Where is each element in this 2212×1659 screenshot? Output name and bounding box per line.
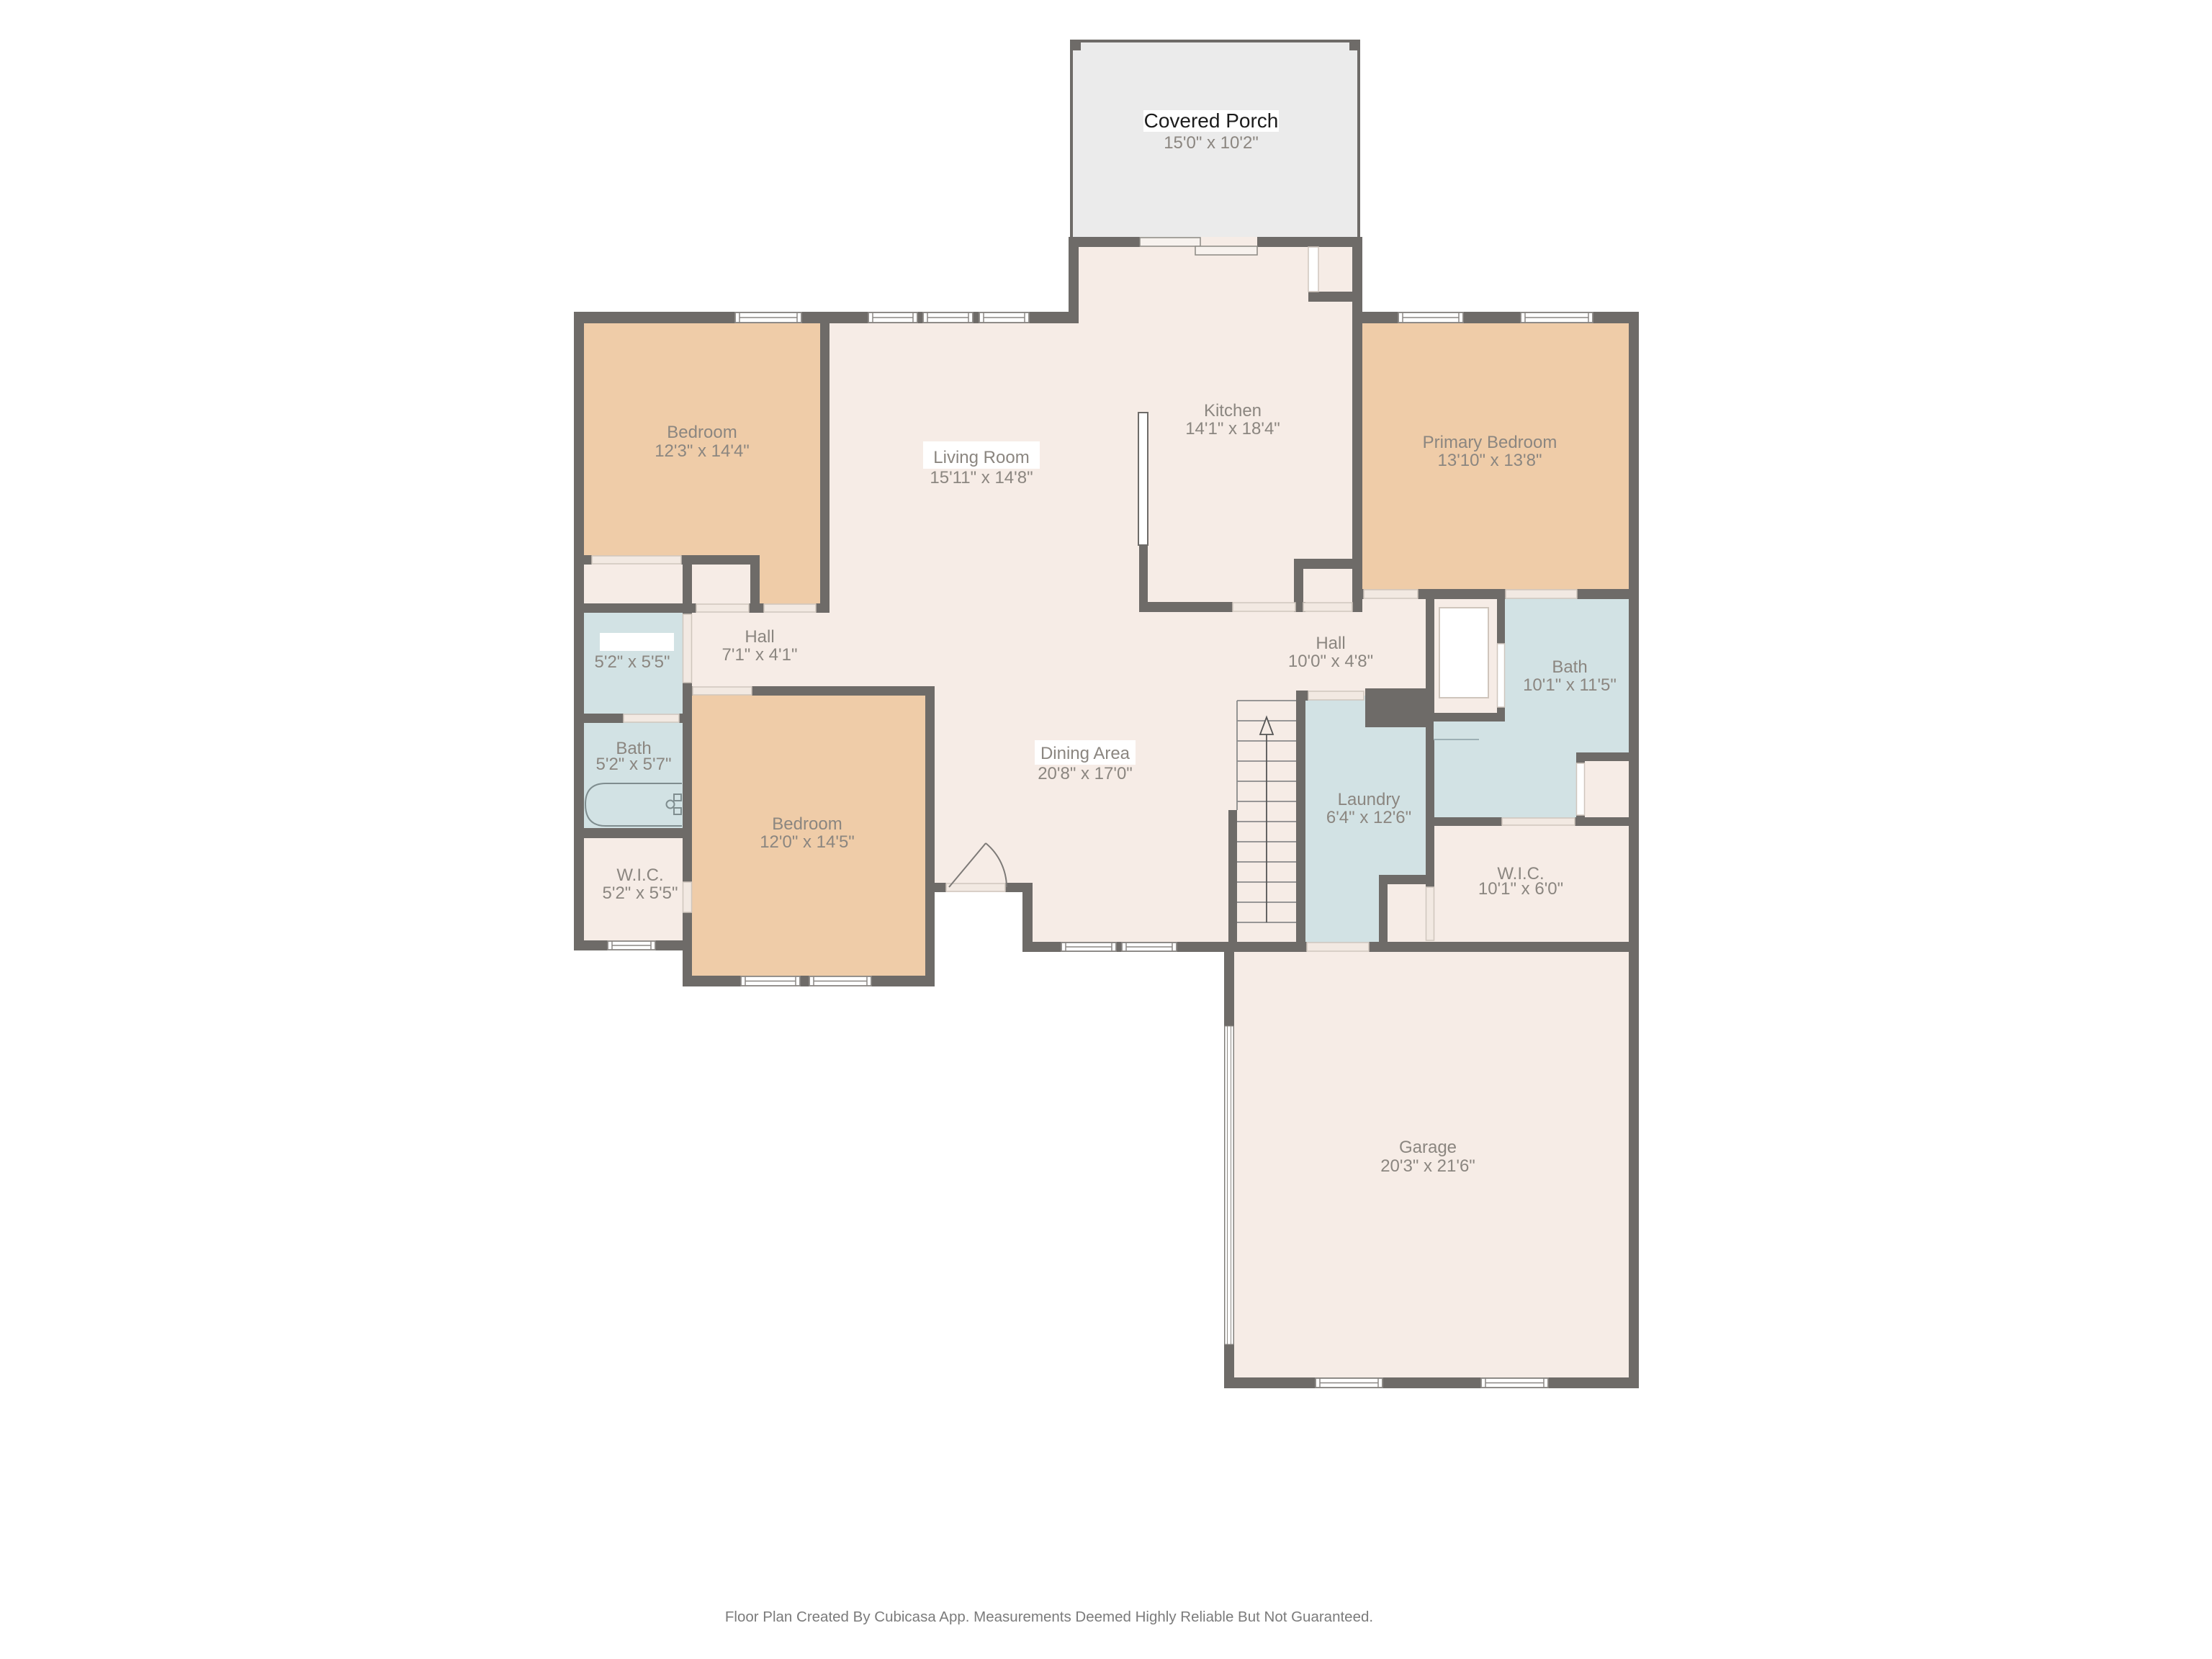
svg-text:10'0" x 4'8": 10'0" x 4'8"	[1288, 652, 1373, 671]
svg-text:12'0" x 14'5": 12'0" x 14'5"	[760, 832, 855, 852]
svg-text:20'3" x 21'6": 20'3" x 21'6"	[1380, 1156, 1475, 1176]
svg-text:5'2" x 5'7": 5'2" x 5'7"	[596, 755, 672, 774]
svg-text:10'1" x 11'5": 10'1" x 11'5"	[1523, 675, 1617, 695]
svg-text:Kitchen: Kitchen	[1204, 401, 1262, 421]
svg-text:Primary Bedroom: Primary Bedroom	[1423, 433, 1557, 452]
svg-text:10'1" x 6'0": 10'1" x 6'0"	[1478, 879, 1563, 899]
svg-text:W.I.C.: W.I.C.	[616, 866, 663, 885]
svg-text:Hall: Hall	[745, 627, 774, 647]
svg-text:7'1" x 4'1": 7'1" x 4'1"	[722, 645, 798, 665]
svg-text:5'2" x 5'5": 5'2" x 5'5"	[595, 652, 670, 672]
svg-text:Bedroom: Bedroom	[772, 814, 842, 834]
svg-text:14'1" x 18'4": 14'1" x 18'4"	[1185, 419, 1280, 439]
svg-text:13'10" x 13'8": 13'10" x 13'8"	[1438, 451, 1542, 470]
svg-text:15'11" x 14'8": 15'11" x 14'8"	[930, 468, 1033, 487]
svg-text:Floor Plan Created By Cubicasa: Floor Plan Created By Cubicasa App. Meas…	[725, 1609, 1373, 1625]
svg-text:Bath: Bath	[1552, 657, 1587, 677]
svg-text:15'0" x 10'2": 15'0" x 10'2"	[1164, 133, 1259, 153]
svg-text:12'3" x 14'4": 12'3" x 14'4"	[655, 441, 750, 461]
svg-text:5'2" x 5'5": 5'2" x 5'5"	[603, 884, 678, 903]
svg-text:Garage: Garage	[1399, 1138, 1457, 1157]
svg-text:Hall: Hall	[1316, 634, 1345, 653]
svg-text:20'8" x 17'0": 20'8" x 17'0"	[1038, 764, 1133, 783]
svg-text:Covered Porch: Covered Porch	[1144, 109, 1279, 132]
svg-text:Dining Area: Dining Area	[1040, 744, 1130, 763]
svg-text:Bedroom: Bedroom	[667, 423, 737, 442]
svg-text:6'4" x 12'6": 6'4" x 12'6"	[1326, 808, 1411, 827]
svg-text:Living Room: Living Room	[933, 448, 1029, 467]
svg-text:Laundry: Laundry	[1338, 790, 1401, 809]
